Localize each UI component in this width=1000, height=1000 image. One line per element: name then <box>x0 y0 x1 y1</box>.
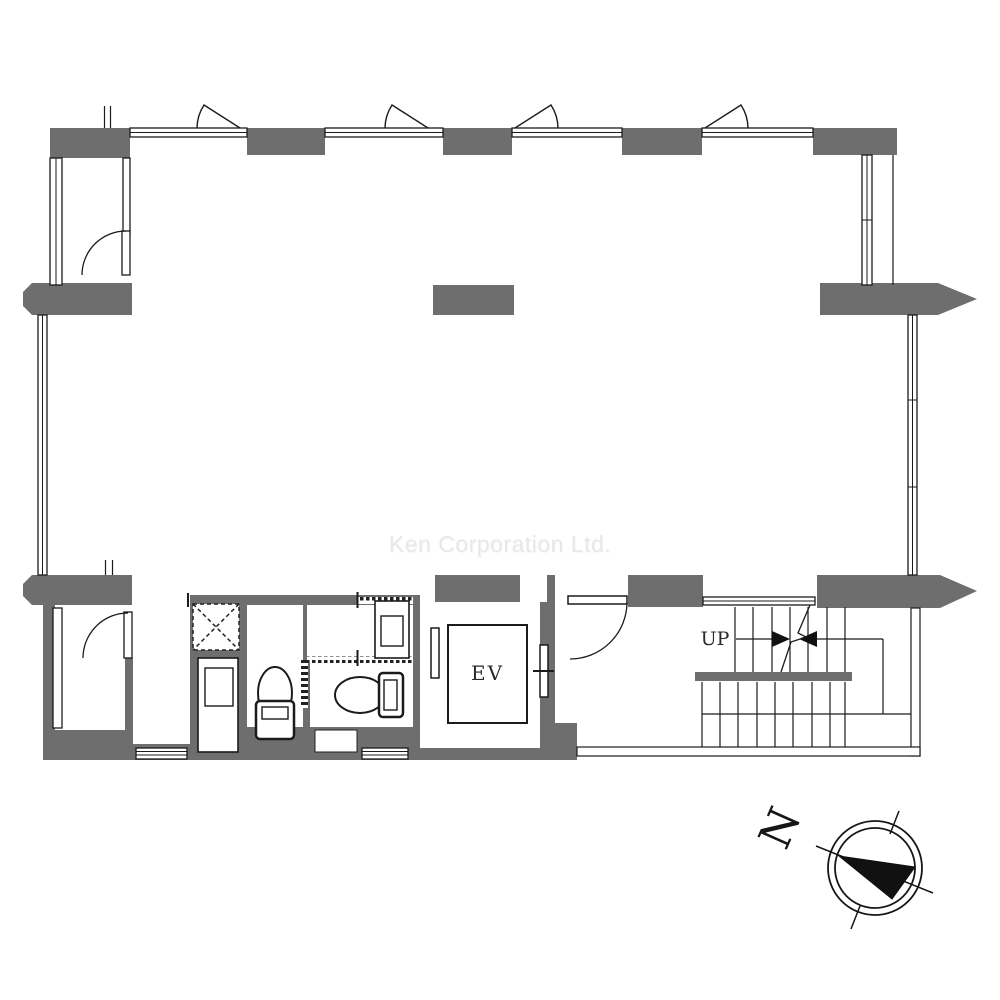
arrow-right-icon <box>772 631 790 647</box>
balcony-bl-right-wall <box>125 658 133 730</box>
balcony-bl-door-leaf <box>124 612 132 658</box>
door-swing-icon <box>570 602 627 659</box>
stairs-up-label: UP <box>696 628 734 650</box>
louver-window-center <box>362 748 408 759</box>
stair-hall-bottom-wall <box>577 747 920 756</box>
toilet-icon <box>335 673 403 717</box>
floor-inset <box>315 730 357 752</box>
pier-top-2 <box>247 128 325 155</box>
balcony-top-left <box>50 158 130 285</box>
watermark: Ken Corporation Ltd. <box>348 531 652 558</box>
floor-plan: Ken Corporation Ltd. EV UP N <box>0 0 1000 1000</box>
door-swing-icon <box>82 231 126 275</box>
pier-top-left <box>50 128 130 158</box>
door-swing-icon <box>83 613 128 658</box>
central-column <box>433 285 514 315</box>
stair-hall-right-wall <box>911 608 920 756</box>
balcony-tl-partition <box>123 158 130 233</box>
pier-stair-hall <box>628 575 703 607</box>
casement-swing-icons <box>197 105 748 128</box>
louver-window-west <box>136 748 187 759</box>
balcony-bl-bottom-wall <box>43 730 133 760</box>
bottom-wall-center <box>420 748 538 760</box>
window-swing-icon <box>705 105 748 128</box>
folding-partition <box>301 660 308 708</box>
toilet-icon <box>256 667 294 739</box>
hall-door-leaf <box>568 596 627 604</box>
pipe-shaft-icon <box>193 604 239 650</box>
window-swing-icon <box>385 105 428 128</box>
stair-hall-corner-wall <box>538 723 577 760</box>
floor-plan-drawing <box>0 0 1000 1000</box>
pier-bottom-left <box>23 575 132 605</box>
balcony-bl-window <box>53 608 62 728</box>
pier-bottom-right <box>817 575 977 608</box>
north-needle <box>839 856 915 899</box>
pier-mid-right <box>820 283 977 315</box>
right-facade <box>577 155 920 756</box>
wall-end-ticks <box>105 106 113 575</box>
pier-top-3 <box>443 128 512 155</box>
top-facade-windows <box>105 105 814 575</box>
washbasin-icon <box>375 601 409 658</box>
stair-landing-edge <box>695 672 852 681</box>
pier-mid-left <box>23 283 132 315</box>
pier-top-right <box>813 128 897 155</box>
elevator-label: EV <box>448 661 527 685</box>
compass-icon <box>816 811 933 929</box>
window-swing-icon <box>515 105 558 128</box>
balcony-tl-door-leaf <box>122 231 130 275</box>
elevator-door-panel <box>431 628 439 678</box>
left-facade-window <box>38 315 47 575</box>
elevator-shaft-top-wall <box>435 575 520 602</box>
pier-top-4 <box>622 128 702 155</box>
window-swing-icon <box>197 105 240 128</box>
washbasin-icon <box>198 658 238 752</box>
